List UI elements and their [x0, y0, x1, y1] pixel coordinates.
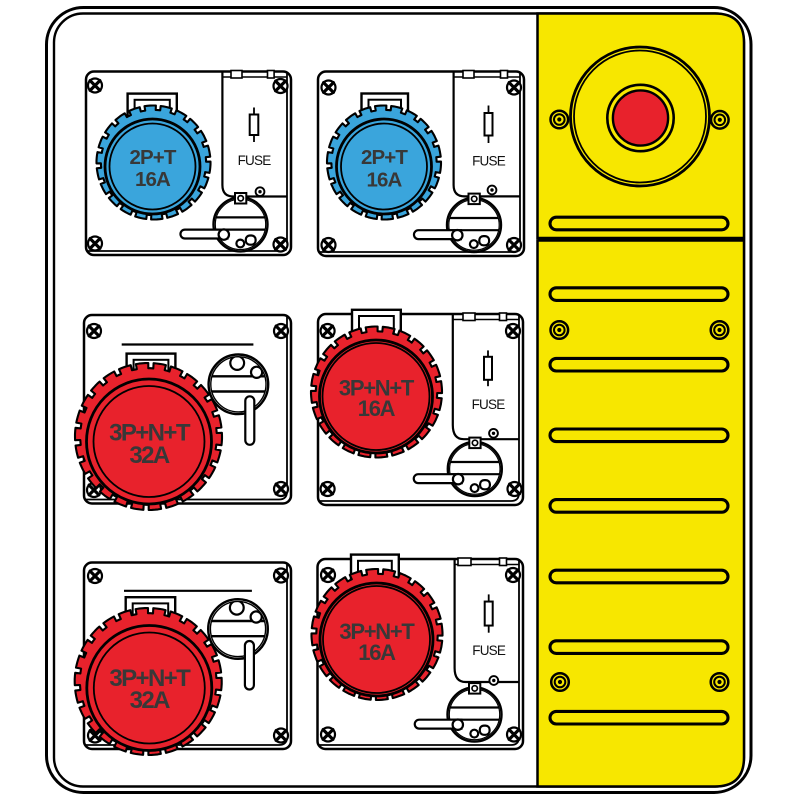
svg-text:32A: 32A [129, 442, 169, 469]
svg-text:32A: 32A [130, 687, 170, 714]
svg-text:2P+T: 2P+T [361, 146, 408, 169]
svg-text:16A: 16A [367, 169, 403, 192]
svg-text:FUSE: FUSE [472, 643, 506, 658]
svg-text:FUSE: FUSE [238, 153, 272, 168]
svg-text:16A: 16A [135, 168, 171, 191]
svg-text:2P+T: 2P+T [130, 146, 177, 169]
svg-text:16A: 16A [358, 640, 396, 665]
svg-text:16A: 16A [358, 396, 396, 421]
svg-text:FUSE: FUSE [472, 397, 506, 412]
svg-text:FUSE: FUSE [472, 154, 506, 169]
